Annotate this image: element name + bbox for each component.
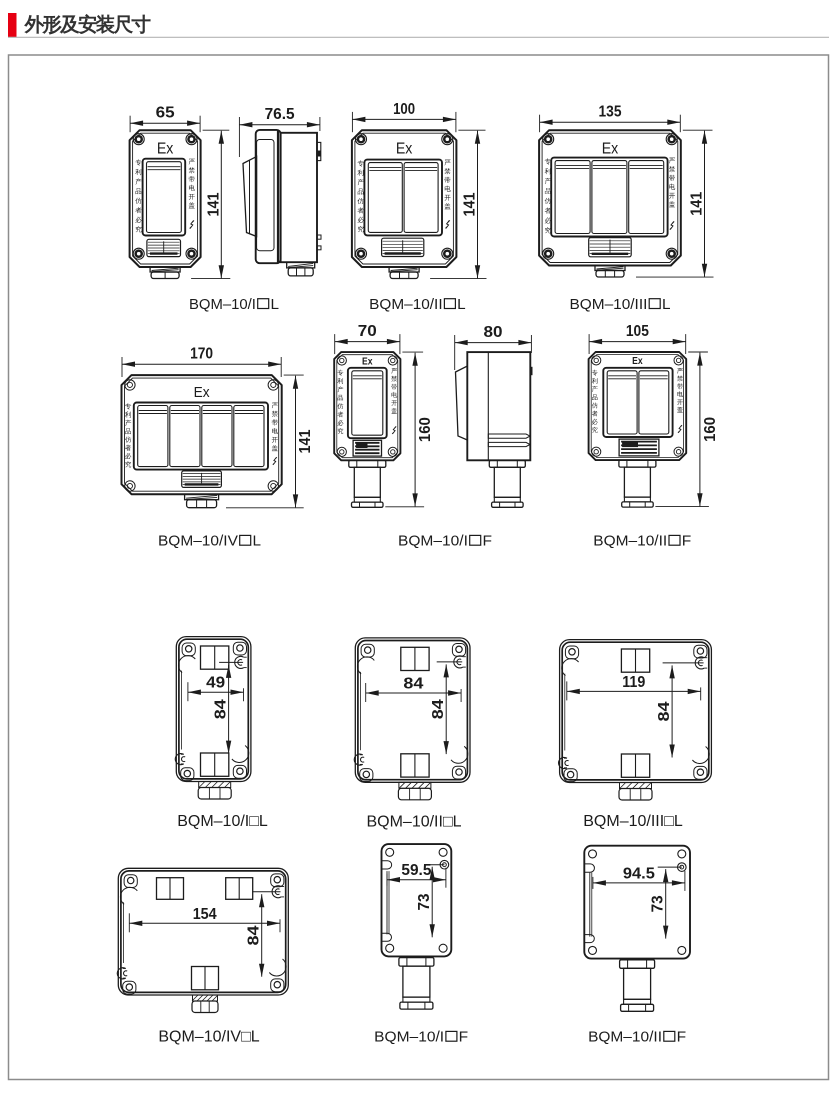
svg-text:BQM–10/III: BQM–10/III — [570, 296, 648, 313]
svg-text:73: 73 — [416, 893, 433, 910]
svg-text:49: 49 — [206, 675, 225, 692]
svg-text:84: 84 — [213, 699, 230, 719]
svg-text:141: 141 — [297, 429, 314, 453]
svg-text:84: 84 — [246, 925, 263, 945]
svg-text:65: 65 — [156, 105, 175, 122]
svg-text:80: 80 — [484, 324, 503, 341]
svg-text:84: 84 — [656, 701, 673, 721]
svg-text:L: L — [662, 296, 671, 313]
svg-text:141: 141 — [689, 192, 706, 216]
svg-text:160: 160 — [702, 417, 719, 442]
svg-text:Ex: Ex — [194, 384, 210, 401]
svg-text:84: 84 — [430, 699, 447, 719]
svg-text:F: F — [682, 533, 692, 550]
svg-text:BQM–10/I: BQM–10/I — [398, 533, 468, 550]
svg-text:Ex: Ex — [157, 141, 174, 158]
svg-text:105: 105 — [626, 323, 649, 340]
svg-text:BQM–10/II: BQM–10/II — [593, 533, 667, 550]
svg-text:70: 70 — [358, 323, 377, 340]
svg-text:L: L — [271, 296, 280, 313]
svg-text:76.5: 76.5 — [265, 106, 295, 123]
svg-text:BQM–10/I: BQM–10/I — [189, 296, 256, 313]
svg-text:BQM–10/I□L: BQM–10/I□L — [177, 813, 268, 830]
svg-text:F: F — [459, 1029, 469, 1046]
svg-text:L: L — [253, 533, 262, 550]
svg-text:BQM–10/IV□L: BQM–10/IV□L — [158, 1029, 259, 1046]
svg-text:BQM–10/II: BQM–10/II — [588, 1029, 662, 1046]
svg-text:BQM–10/II: BQM–10/II — [369, 296, 442, 313]
svg-text:154: 154 — [193, 906, 217, 923]
svg-text:Ex: Ex — [396, 141, 413, 158]
svg-text:141: 141 — [462, 192, 479, 216]
svg-text:170: 170 — [190, 346, 213, 363]
svg-text:Ex: Ex — [632, 356, 643, 367]
svg-text:L: L — [457, 296, 466, 313]
svg-text:BQM–10/II□L: BQM–10/II□L — [366, 814, 461, 831]
svg-text:100: 100 — [393, 101, 415, 118]
svg-text:135: 135 — [599, 104, 622, 121]
svg-text:BQM–10/III□L: BQM–10/III□L — [583, 813, 683, 830]
svg-text:141: 141 — [205, 192, 222, 216]
svg-text:F: F — [483, 533, 493, 550]
svg-text:Ex: Ex — [602, 141, 619, 158]
svg-text:BQM–10/IV: BQM–10/IV — [158, 533, 239, 550]
svg-text:84: 84 — [403, 676, 423, 693]
svg-text:F: F — [677, 1029, 687, 1046]
svg-text:94.5: 94.5 — [623, 865, 655, 882]
svg-text:Ex: Ex — [362, 356, 373, 367]
svg-text:BQM–10/I: BQM–10/I — [374, 1029, 444, 1046]
svg-text:73: 73 — [650, 895, 667, 912]
svg-text:119: 119 — [622, 674, 645, 691]
svg-text:160: 160 — [417, 417, 434, 442]
